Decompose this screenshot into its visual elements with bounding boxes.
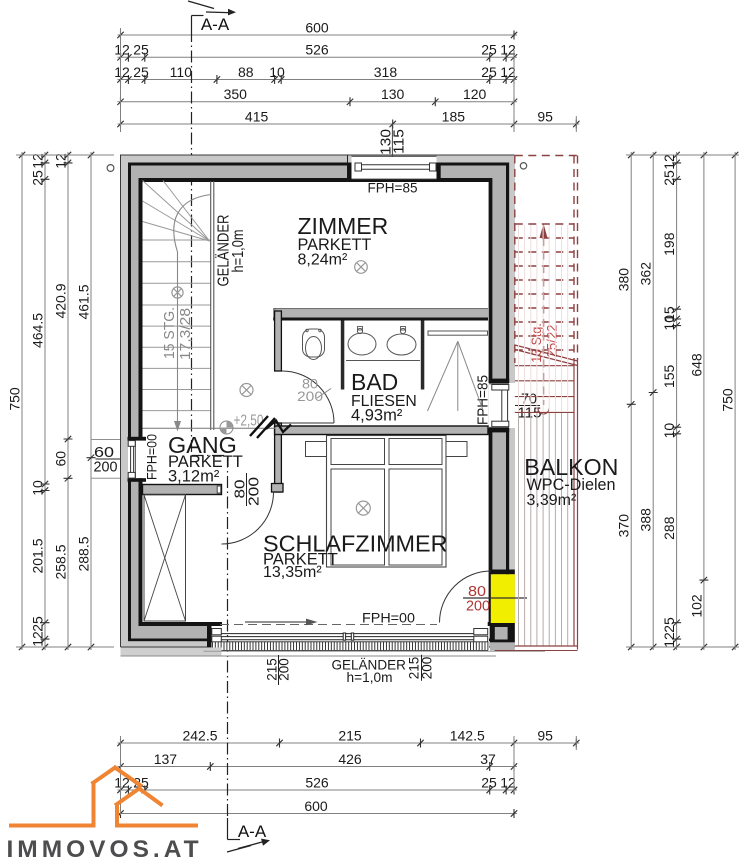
svg-text:130: 130 [381,86,405,102]
svg-text:102: 102 [688,594,704,618]
svg-text:750: 750 [6,387,22,411]
svg-text:318: 318 [374,64,398,80]
svg-text:3,12m²: 3,12m² [168,468,220,486]
svg-text:115: 115 [518,406,542,422]
svg-text:FPH=85: FPH=85 [476,375,492,425]
svg-text:12: 12 [114,64,130,80]
svg-text:IMMOVOS.AT: IMMOVOS.AT [7,836,203,861]
svg-text:110: 110 [170,64,193,80]
svg-text:200: 200 [276,658,292,681]
svg-text:FPH=00: FPH=00 [362,611,415,626]
svg-text:200: 200 [246,477,263,506]
svg-text:h=1,0m: h=1,0m [230,230,247,273]
svg-text:25: 25 [133,42,149,58]
svg-text:258.5: 258.5 [52,544,68,579]
svg-text:BAD: BAD [351,369,398,395]
svg-text:FPH=85: FPH=85 [368,181,418,196]
svg-text:370: 370 [616,514,632,538]
svg-text:25: 25 [481,42,497,58]
svg-text:288: 288 [661,516,677,540]
svg-text:461.5: 461.5 [75,284,91,319]
svg-text:120: 120 [463,86,487,102]
svg-text:3,39m²: 3,39m² [527,492,577,509]
svg-text:242.5: 242.5 [182,727,217,743]
svg-text:12: 12 [661,154,677,170]
svg-text:12: 12 [114,42,130,58]
svg-text:95: 95 [537,108,553,124]
svg-text:350: 350 [224,86,248,102]
svg-text:8,24m²: 8,24m² [298,252,348,269]
svg-text:25: 25 [29,170,45,186]
svg-text:115: 115 [391,129,408,154]
svg-text:17,3/28: 17,3/28 [177,308,194,360]
svg-text:25: 25 [481,774,497,790]
svg-text:600: 600 [304,798,328,814]
svg-text:185: 185 [442,108,466,124]
svg-text:25: 25 [29,616,45,632]
svg-text:200: 200 [466,599,490,615]
svg-text:288.5: 288.5 [75,536,91,571]
svg-text:526: 526 [305,42,329,58]
svg-text:388: 388 [638,508,654,532]
svg-text:415: 415 [245,108,269,124]
svg-text:750: 750 [720,388,736,412]
svg-text:198: 198 [661,232,677,256]
svg-text:60: 60 [52,451,68,467]
svg-text:4,93m²: 4,93m² [351,407,403,425]
svg-text:25: 25 [133,64,149,80]
svg-text:FPH=00: FPH=00 [144,434,160,480]
svg-text:10: 10 [29,480,45,496]
svg-text:10: 10 [661,423,677,439]
svg-text:137: 137 [154,751,178,767]
svg-text:200: 200 [94,459,118,476]
svg-text:426: 426 [338,751,362,767]
svg-text:h=1,0m: h=1,0m [347,669,393,685]
svg-text:380: 380 [616,268,632,292]
svg-text:10: 10 [661,315,677,331]
svg-text:420.9: 420.9 [52,283,68,318]
svg-text:A-A: A-A [238,822,267,841]
svg-text:200: 200 [297,388,323,404]
svg-text:12: 12 [29,631,45,647]
svg-text:13,35m²: 13,35m² [263,564,322,581]
svg-text:37: 37 [480,751,496,767]
svg-text:155: 155 [661,365,677,389]
svg-text:10: 10 [269,64,285,80]
svg-text:464.5: 464.5 [29,313,45,348]
svg-text:25: 25 [661,170,677,186]
svg-text:142.5: 142.5 [450,727,485,743]
svg-text:15 STG.: 15 STG. [161,307,178,359]
svg-text:88: 88 [238,64,254,80]
svg-text:A-A: A-A [201,15,230,34]
svg-text:648: 648 [688,353,704,377]
svg-text:526: 526 [305,774,329,790]
svg-text:95: 95 [537,727,553,743]
svg-text:362: 362 [638,262,654,286]
svg-text:201.5: 201.5 [29,538,45,573]
svg-text:200: 200 [419,657,435,680]
svg-text:25: 25 [661,617,677,633]
svg-text:215: 215 [338,727,362,743]
svg-text:25: 25 [481,64,497,80]
svg-text:600: 600 [305,19,329,35]
svg-text:12: 12 [661,632,677,648]
